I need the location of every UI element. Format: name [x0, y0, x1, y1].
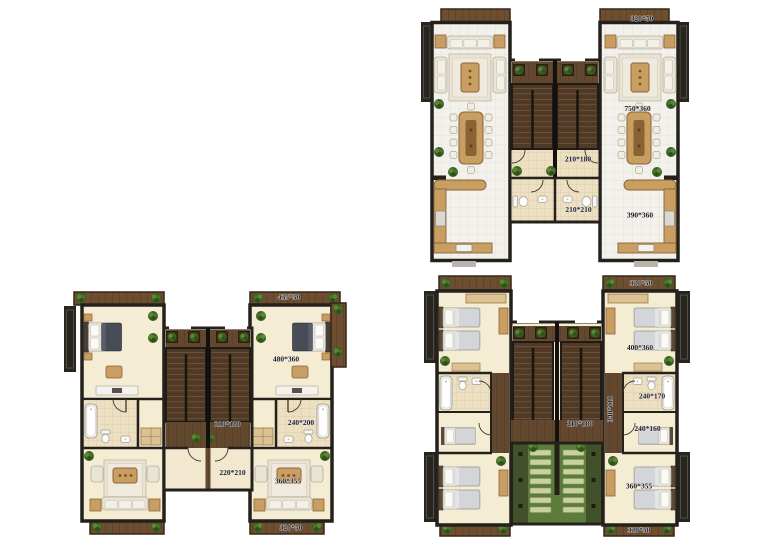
dim-balcony-ground: 320*50 — [631, 14, 654, 23]
ground-right-unit-wing — [600, 9, 689, 267]
first-floor-plan: 435*50 480*360 210*180 240*200 220*210 3… — [64, 292, 346, 534]
ground-middle-core — [510, 58, 600, 223]
first-right-unit-wing — [250, 292, 340, 534]
dim-corridor-first: 220*210 — [219, 468, 246, 477]
first-left-unit-wing — [74, 292, 164, 534]
dim-bathroom-first: 240*200 — [288, 418, 315, 427]
dim-corridor-second: 340*110 — [606, 396, 615, 422]
floor-plans-svg: 320*50 750*360 210*180 210*210 390*360 — [0, 0, 760, 547]
dim-hall-first: 210*180 — [214, 420, 241, 429]
dim-bedroom-bottom-second: 360*355 — [626, 482, 653, 491]
ground-floor-plan: 320*50 750*360 210*180 210*210 390*360 — [421, 9, 689, 267]
first-right-side-balcony — [331, 303, 346, 367]
dim-bathroom-ground: 210*210 — [565, 205, 592, 214]
window-bay — [64, 306, 76, 372]
dim-hall-second: 210*180 — [567, 419, 594, 428]
dim-balcony-top-second: 320*50 — [630, 279, 653, 288]
dim-bedroom-first: 480*360 — [273, 355, 300, 364]
floor-plans-canvas: 320*50 750*360 210*180 210*210 390*360 — [0, 0, 760, 547]
dim-living-ground: 750*360 — [624, 104, 651, 113]
second-pergola-terrace — [512, 442, 603, 524]
dim-balcony-bottom-second: 320*50 — [628, 526, 651, 535]
dim-dressing-second: 240*160 — [634, 424, 661, 433]
dim-balcony-top-first: 435*50 — [278, 293, 301, 302]
dim-kitchen-ground: 390*360 — [627, 211, 654, 220]
dim-balcony-bottom-first: 320*50 — [280, 523, 303, 532]
dim-bathroom-second: 240*170 — [639, 392, 666, 401]
first-middle-core — [164, 326, 252, 491]
dim-bedroom-top-second: 400*360 — [627, 343, 654, 352]
ground-left-unit-wing — [421, 9, 510, 267]
dim-living-first: 360*355 — [275, 477, 302, 486]
dim-hall-ground: 210*180 — [565, 155, 592, 164]
